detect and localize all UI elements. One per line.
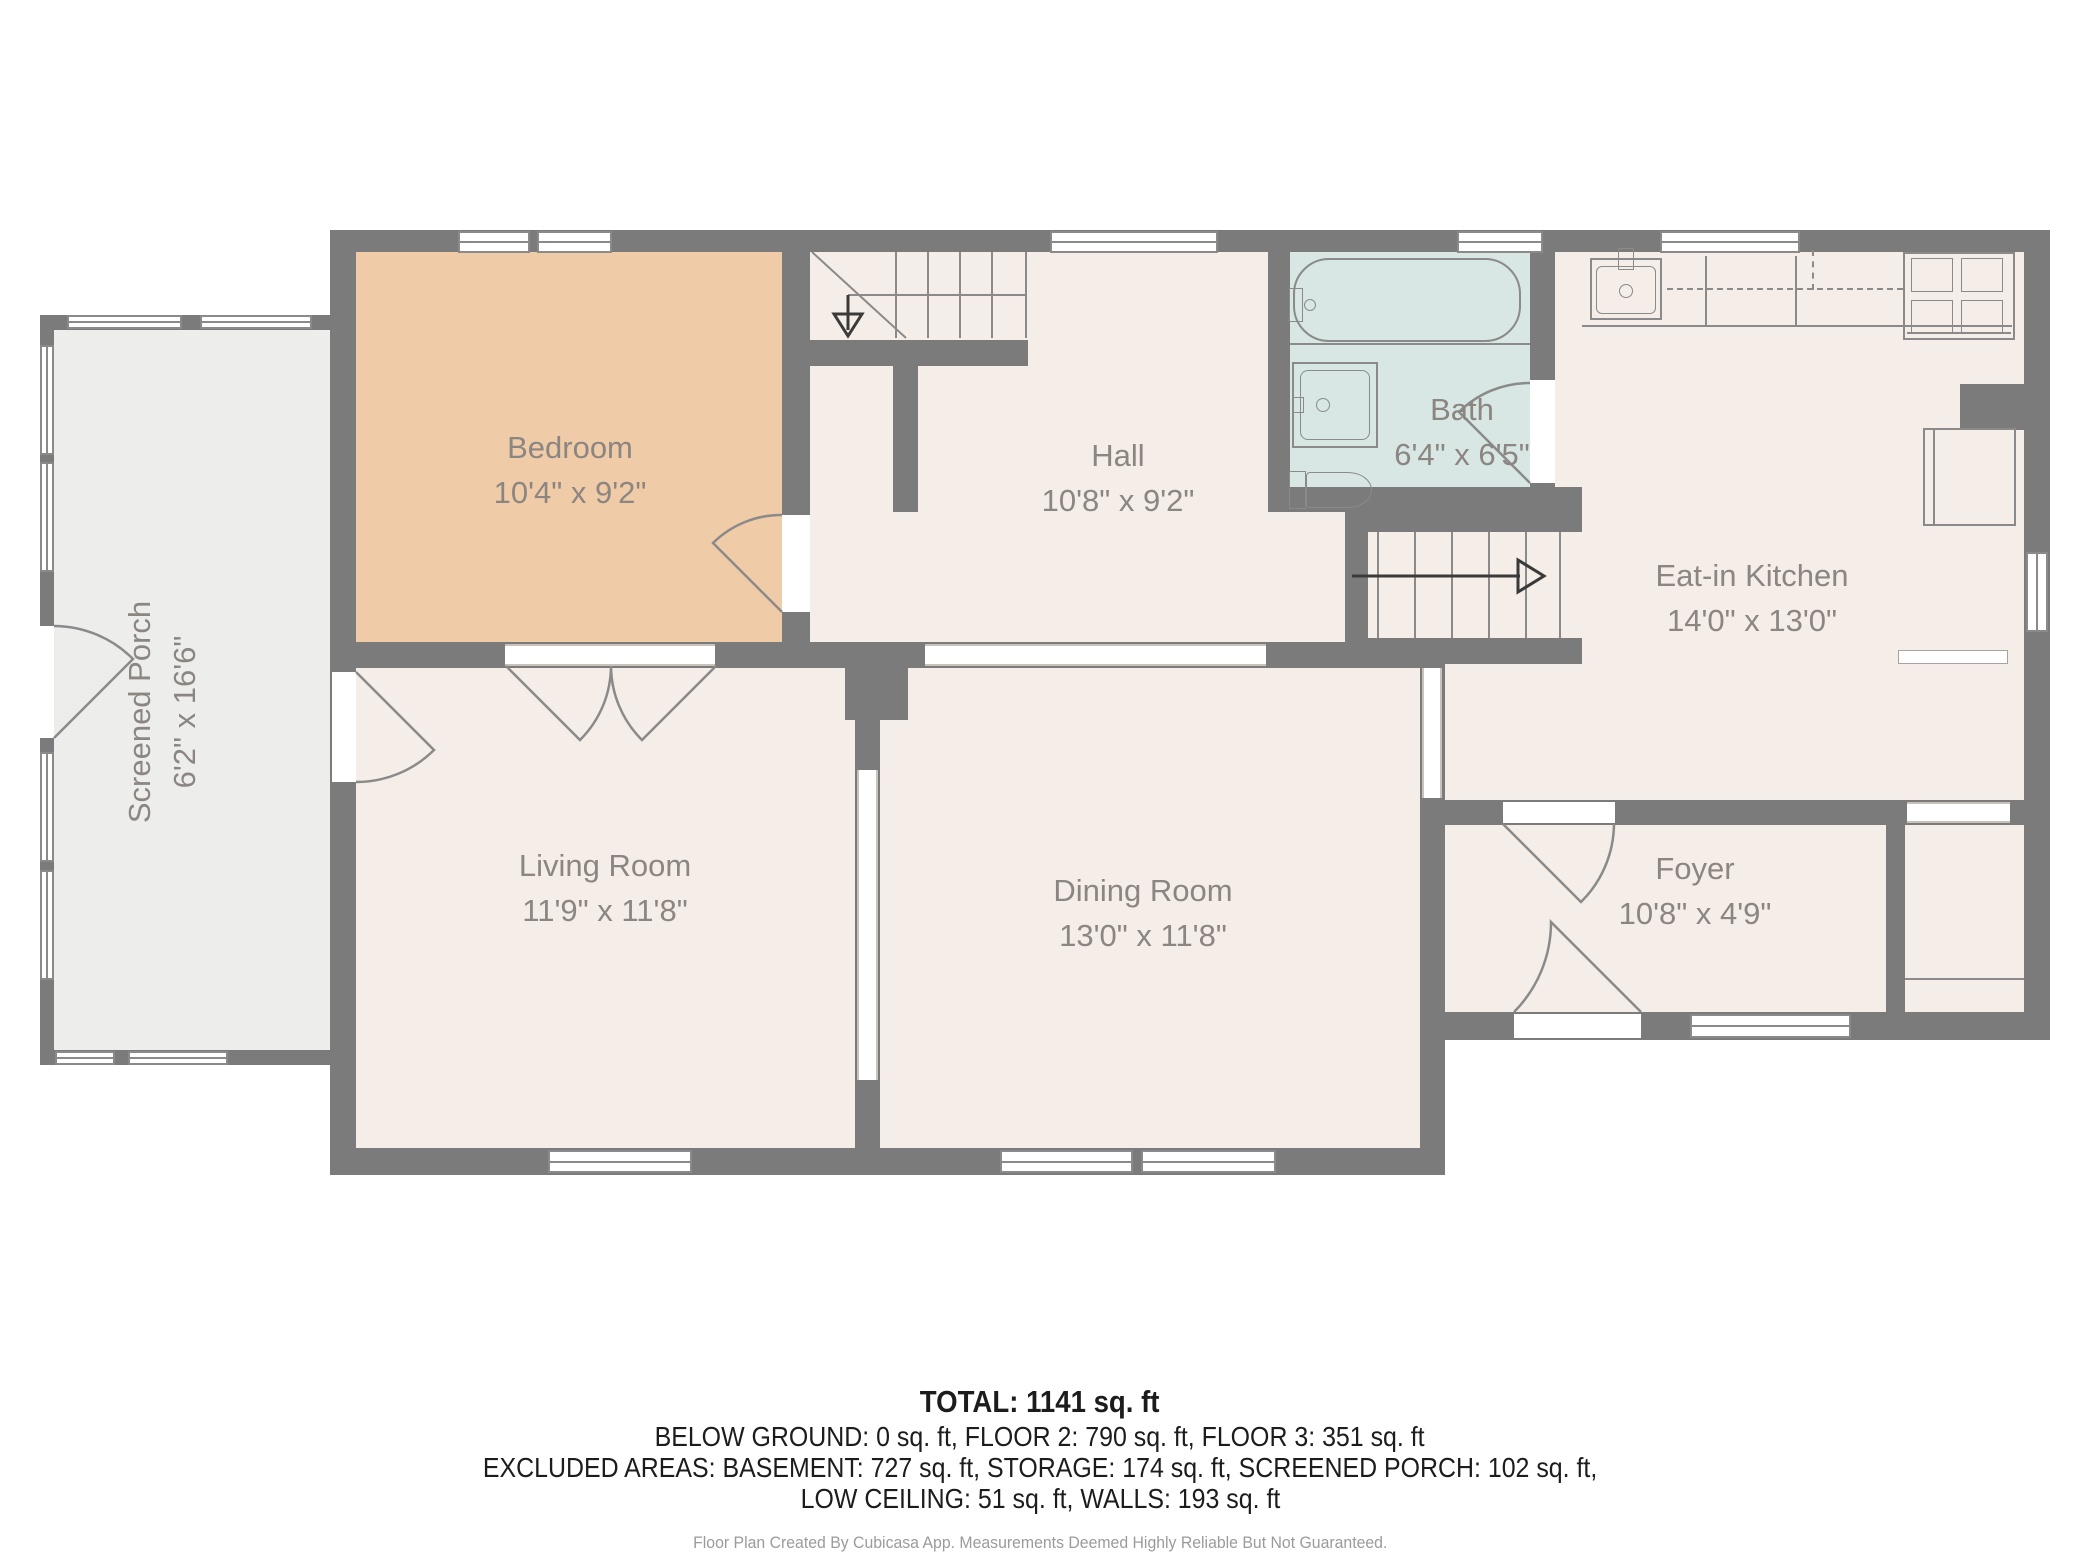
room-dims: 14'0" x 13'0" (1656, 598, 1849, 643)
tub-drain-icon (1304, 299, 1316, 311)
porch-window (40, 870, 54, 980)
kitchen-sink-drain (1619, 284, 1633, 298)
tub-faucet-icon (1289, 288, 1303, 322)
kitchen-label: Eat-in Kitchen 14'0" x 13'0" (1656, 553, 1849, 643)
window (1050, 231, 1218, 253)
kitchen-wall-notch (1960, 384, 2024, 430)
living-dining-opening (857, 770, 878, 1080)
room-dims: 10'4" x 9'2" (494, 470, 647, 515)
kitchen-faucet-icon (1618, 248, 1634, 270)
room-name: Bedroom (494, 425, 647, 470)
room-name: Living Room (519, 843, 691, 888)
window (537, 231, 612, 253)
bath-sink-drain (1316, 398, 1330, 412)
stove-burner (1961, 300, 2003, 334)
window (548, 1150, 692, 1173)
room-name: Bath (1394, 387, 1530, 432)
area-summary: TOTAL: 1141 sq. ft BELOW GROUND: 0 sq. f… (0, 1383, 2080, 1514)
bath-sink-tap (1292, 397, 1304, 413)
bathtub-icon (1293, 258, 1521, 342)
room-dims: 13'0" x 11'8" (1053, 913, 1232, 958)
closet-floor (1905, 825, 2024, 1012)
porch-window (128, 1051, 228, 1065)
fridge-door-line (1933, 430, 1935, 524)
room-name: Eat-in Kitchen (1656, 553, 1849, 598)
stairs-up-top-wall (1345, 510, 1582, 532)
porch-window (55, 1051, 115, 1065)
stove-burner (1911, 300, 1953, 334)
room-dims: 11'9" x 11'8" (519, 888, 691, 933)
upper-cabinet-dashed (1812, 250, 1814, 290)
bedroom-french-door-opening (505, 644, 715, 666)
bedroom-label: Bedroom 10'4" x 9'2" (494, 425, 647, 515)
upper-cabinet-dashed (1667, 288, 1903, 290)
closet-opening (1907, 802, 2010, 823)
dining-room-label: Dining Room 13'0" x 11'8" (1053, 868, 1232, 958)
room-kitchen-floor-lower (1445, 664, 1555, 800)
porch-window (67, 315, 182, 329)
room-hall-floor (810, 366, 1268, 642)
porch-living-door-gap (332, 672, 356, 782)
room-name: Dining Room (1053, 868, 1232, 913)
room-name: Hall (1042, 433, 1195, 478)
window (458, 231, 530, 253)
porch-door-gap (40, 626, 54, 738)
window (1660, 231, 1800, 253)
bath-sink-basin (1300, 370, 1370, 440)
fridge-icon (1923, 428, 2016, 526)
hall-dining-opening (925, 644, 1266, 666)
porch-window (40, 752, 54, 862)
room-dims: 10'8" x 4'9" (1619, 891, 1772, 936)
foyer-door-gap (1503, 802, 1615, 823)
toilet-tank-icon (1289, 471, 1306, 509)
window (1141, 1150, 1276, 1173)
closet-shelf-line (1905, 978, 2024, 980)
porch-window (200, 315, 312, 329)
exterior-notch (1445, 1040, 2050, 1175)
stairs-down-floor (810, 252, 1028, 340)
room-dims: 6'4" x 6'5" (1394, 432, 1530, 477)
counter-divider (1795, 256, 1797, 326)
stove-burner (1911, 258, 1953, 292)
disclaimer: Floor Plan Created By Cubicasa App. Meas… (0, 1533, 2080, 1553)
living-dining-wall-stub (845, 642, 908, 720)
porch-window (40, 462, 54, 572)
living-room-label: Living Room 11'9" x 11'8" (519, 843, 691, 933)
room-dims: 6'2" x 16'6" (162, 601, 207, 823)
floor-areas: BELOW GROUND: 0 sq. ft, FLOOR 2: 790 sq.… (0, 1421, 2080, 1452)
foyer-label: Foyer 10'8" x 4'9" (1619, 846, 1772, 936)
window (1457, 231, 1543, 253)
stairs-up-floor (1368, 532, 1582, 638)
dining-kitchen-opening (1422, 668, 1442, 798)
stair-landing-floor (1268, 512, 1345, 642)
toilet-bowl-icon (1306, 472, 1372, 508)
counter-divider (1705, 256, 1707, 326)
bath-door-gap (1530, 380, 1555, 483)
porch-label: Screened Porch 6'2" x 16'6" (117, 601, 207, 823)
bath-divider-line (1290, 343, 1530, 345)
porch-window (40, 345, 54, 455)
total-area: TOTAL: 1141 sq. ft (0, 1383, 2080, 1421)
excluded-areas: EXCLUDED AREAS: BASEMENT: 727 sq. ft, ST… (0, 1452, 2080, 1483)
floor-plan-canvas: Bedroom 10'4" x 9'2" Hall 10'8" x 9'2" B… (0, 0, 2080, 1560)
room-name: Screened Porch (117, 601, 162, 823)
bedroom-door-gap (782, 515, 810, 612)
stairs-up-bottom-wall (1345, 638, 1582, 664)
room-name: Foyer (1619, 846, 1772, 891)
bath-label: Bath 6'4" x 6'5" (1394, 387, 1530, 477)
window (1000, 1150, 1133, 1173)
kitchen-pass-strip (1898, 650, 2008, 664)
excluded-areas-2: LOW CEILING: 51 sq. ft, WALLS: 193 sq. f… (0, 1483, 2080, 1514)
entry-door-gap (1514, 1014, 1641, 1038)
window (2026, 552, 2048, 632)
stove-burner (1961, 258, 2003, 292)
room-dims: 10'8" x 9'2" (1042, 478, 1195, 523)
stove-front-line (1907, 332, 2011, 334)
hall-nook-wall (893, 366, 918, 512)
window (1690, 1014, 1851, 1038)
hall-label: Hall 10'8" x 9'2" (1042, 433, 1195, 523)
